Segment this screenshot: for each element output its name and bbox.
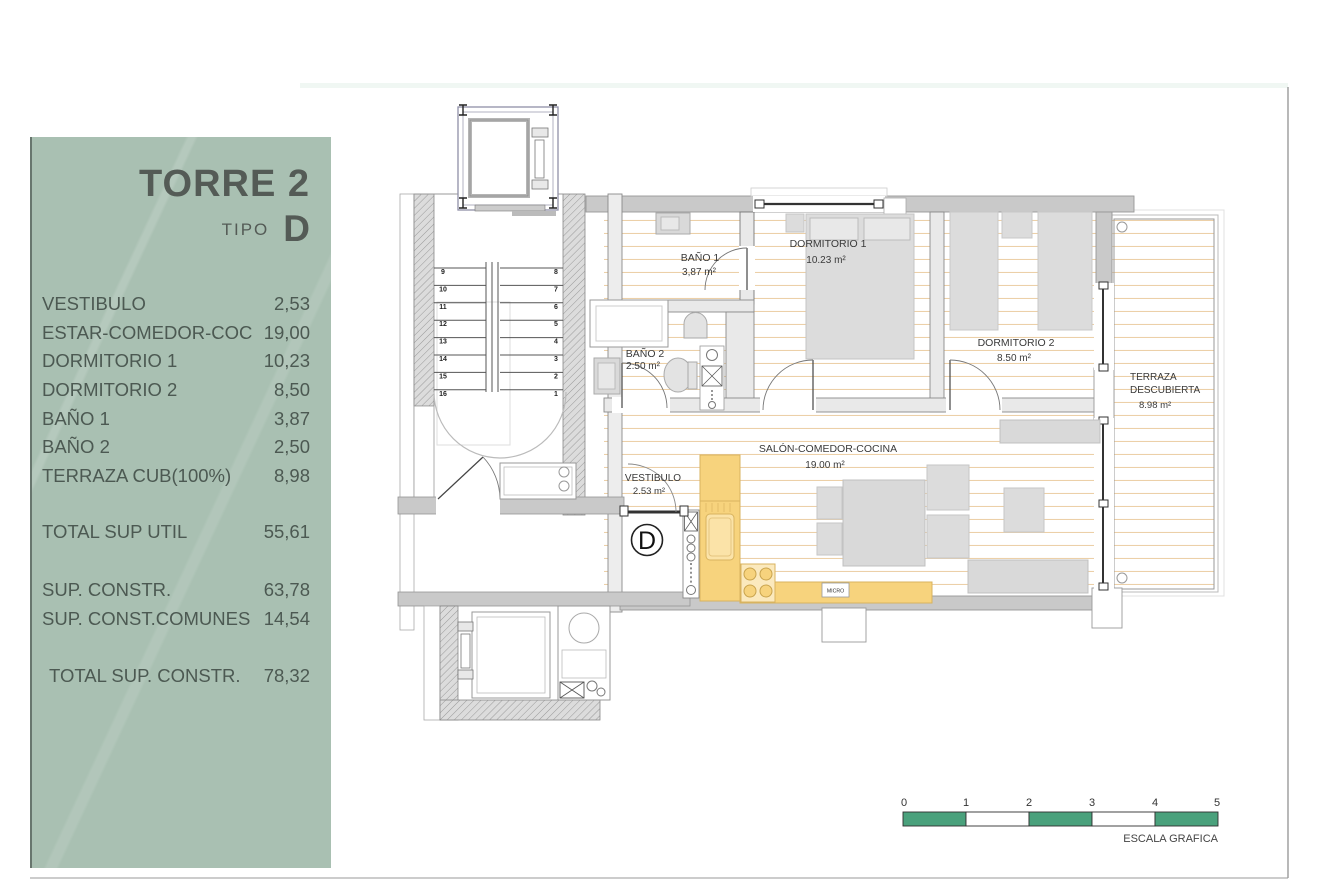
label-dorm1: DORMITORIO 1 (790, 238, 867, 250)
svg-text:13: 13 (439, 339, 447, 346)
nightstand-left (786, 214, 804, 232)
core-door-arc (483, 457, 500, 499)
svg-text:TERRAZA: TERRAZA (1130, 372, 1177, 383)
terrace-column-top (1117, 222, 1127, 232)
stair-treads (434, 262, 563, 392)
svg-text:12: 12 (439, 321, 447, 328)
svg-text:0: 0 (901, 797, 907, 809)
chair (927, 515, 969, 558)
chair (927, 465, 969, 510)
chair (817, 487, 842, 519)
svg-text:9: 9 (441, 269, 445, 276)
scale-caption: ESCALA GRAFICA (1123, 833, 1218, 845)
tv-cabinet (1000, 420, 1100, 443)
core-door-leaf (438, 457, 483, 499)
svg-text:2: 2 (554, 373, 558, 380)
elevator-top-car (470, 120, 528, 196)
svg-text:3: 3 (1089, 797, 1095, 809)
entrance-meter-column (683, 510, 699, 598)
wall-right-mid (1094, 368, 1114, 420)
elevator-bottom (424, 606, 610, 720)
exterior-unit-box (822, 608, 866, 642)
label-salon: SALÓN-COMEDOR-COCINA (759, 442, 897, 455)
wall-dorm1-dorm2 (930, 212, 944, 412)
area-salon: 19.00 m² (805, 460, 845, 471)
label-bano1: BAÑO 1 (681, 251, 720, 264)
terrace-threshold (1092, 588, 1122, 628)
chair (817, 523, 842, 555)
wall-right-upper (1096, 212, 1112, 285)
unit-letter: D (638, 527, 656, 555)
wall-shaft (726, 312, 754, 400)
svg-text:14: 14 (439, 356, 447, 363)
elevator-bottom-car (472, 612, 550, 698)
elevator-top (458, 105, 558, 216)
svg-text:1: 1 (963, 797, 969, 809)
scale-ticks: 0 1 2 3 4 5 (901, 797, 1220, 809)
window-dorm2-terrace (1094, 282, 1114, 371)
svg-text:15: 15 (439, 373, 447, 380)
svg-text:5: 5 (1214, 797, 1220, 809)
area-terraza: 8.98 m² (1139, 400, 1171, 411)
nightstand-dorm2 (1002, 212, 1032, 238)
core-bottom-wall (398, 497, 624, 514)
stair-step-numbers: 9 10 11 12 13 14 15 16 8 7 6 5 4 3 2 1 (439, 269, 558, 398)
svg-text:3: 3 (554, 356, 558, 363)
svg-text:5: 5 (554, 321, 558, 328)
svg-text:6: 6 (554, 304, 558, 311)
window-dorm1-top (751, 188, 887, 212)
toilet-a (684, 313, 707, 339)
microwave-label: MICRO (827, 589, 844, 595)
elevator-top-door (475, 205, 545, 211)
floor-plan: 9 10 11 12 13 14 15 16 8 7 6 5 4 3 2 1 (0, 0, 1320, 895)
area-bano1: 3,87 m² (682, 267, 717, 278)
bano2-toilet (664, 358, 697, 392)
svg-text:16: 16 (439, 391, 447, 398)
utility-shaft (558, 606, 610, 700)
bed-dorm2-a (950, 212, 998, 330)
svg-text:4: 4 (1152, 797, 1158, 809)
label-bano2: BAÑO 2 (626, 347, 665, 360)
kitchen-sink (706, 514, 734, 560)
area-dorm2: 8.50 m² (997, 353, 1032, 364)
stair-wall-left (414, 194, 434, 406)
wall-bedrooms-salon (604, 398, 1104, 412)
terrace-column-bottom (1117, 573, 1127, 583)
stair-landing-arc (434, 392, 566, 458)
svg-text:11: 11 (439, 304, 447, 311)
bano2-shower (590, 300, 668, 347)
svg-text:DESCUBIERTA: DESCUBIERTA (1130, 385, 1201, 396)
label-dorm2: DORMITORIO 2 (978, 337, 1055, 349)
water-heater (569, 613, 599, 643)
kitchen-cabinet (700, 455, 740, 501)
bed-dorm2-b (1038, 212, 1092, 330)
svg-text:2: 2 (1026, 797, 1032, 809)
sofa (968, 560, 1088, 593)
armchair (1004, 488, 1044, 532)
area-bano2: 2.50 m² (626, 361, 661, 372)
svg-text:7: 7 (554, 286, 558, 293)
svg-text:8: 8 (554, 269, 558, 276)
wall-banos (668, 300, 754, 312)
svg-text:10: 10 (439, 286, 447, 293)
area-vestibulo: 2.53 m² (633, 486, 665, 497)
svg-text:4: 4 (554, 339, 558, 346)
scale-bar: 0 1 2 3 4 5 ESCALA GRAFICA (901, 797, 1220, 845)
laundry-shaft (700, 346, 724, 410)
unit-badge: D (632, 525, 663, 556)
dining-table (843, 480, 925, 566)
svg-text:1: 1 (554, 391, 558, 398)
area-dorm1: 10.23 m² (806, 255, 846, 266)
corridor-bottom-wall (398, 592, 690, 606)
label-vestibulo: VESTIBULO (625, 473, 681, 484)
